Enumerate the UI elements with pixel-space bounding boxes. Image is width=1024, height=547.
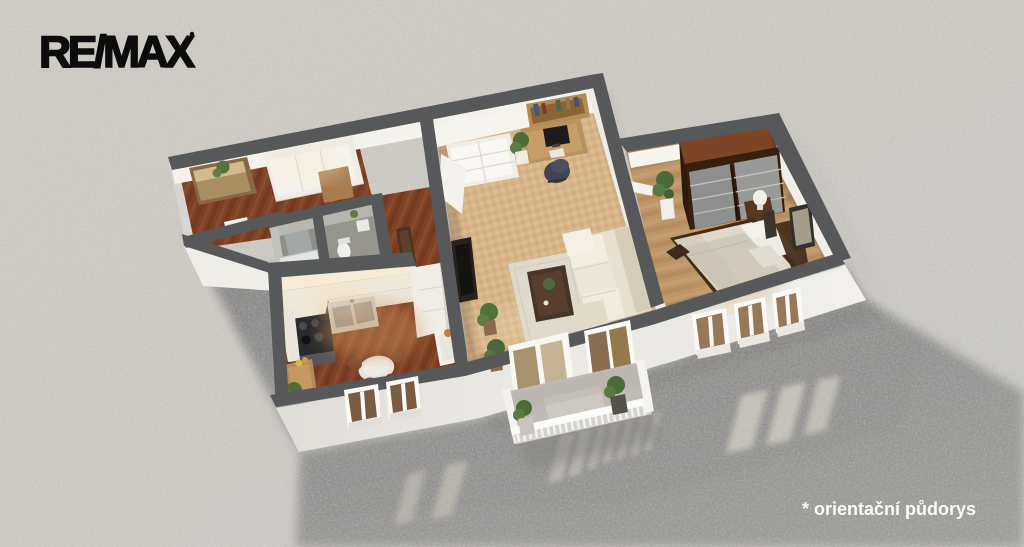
svg-text:* orientační půdorys: * orientační půdorys <box>802 499 976 519</box>
svg-text:RE/MAX: RE/MAX <box>39 28 195 77</box>
